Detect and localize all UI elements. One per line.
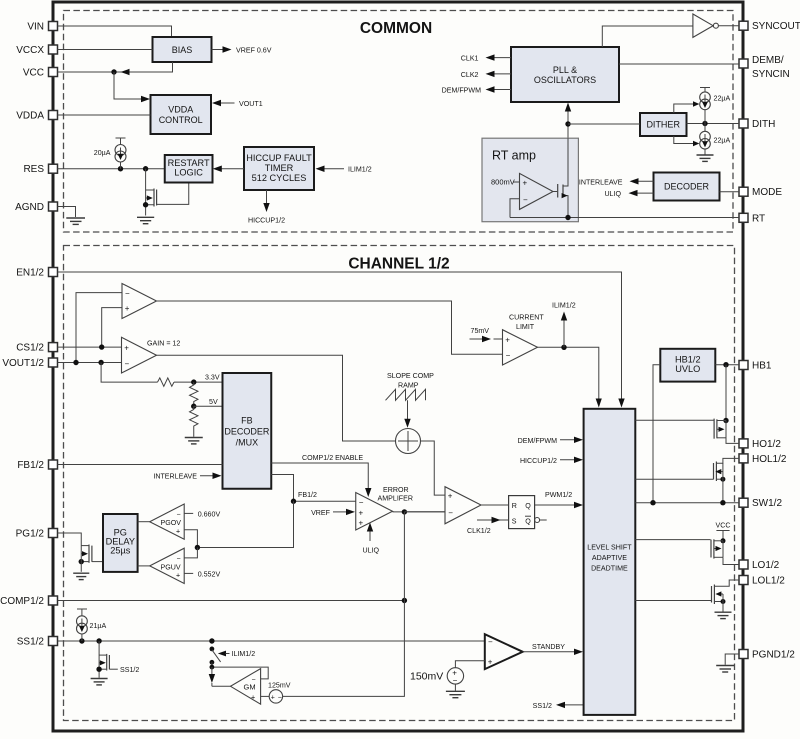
- svg-text:ILIM1/2: ILIM1/2: [232, 650, 256, 658]
- svg-text:Q: Q: [525, 502, 531, 510]
- svg-text:LEVEL SHIFT: LEVEL SHIFT: [587, 544, 632, 552]
- svg-text:ILIM1/2: ILIM1/2: [348, 166, 372, 174]
- svg-text:EN1/2: EN1/2: [16, 268, 44, 279]
- svg-text:CLK1/2: CLK1/2: [467, 527, 491, 535]
- svg-text:+: +: [448, 492, 453, 501]
- svg-text:COMMON: COMMON: [360, 20, 432, 37]
- svg-text:FB1/2: FB1/2: [17, 460, 44, 471]
- svg-text:VDDA: VDDA: [168, 105, 193, 115]
- svg-text:INTERLEAVE: INTERLEAVE: [579, 178, 623, 186]
- svg-text:−: −: [448, 508, 453, 517]
- svg-text:PWM1/2: PWM1/2: [545, 491, 572, 499]
- svg-text:RES: RES: [23, 164, 44, 175]
- svg-text:PLL &: PLL &: [553, 65, 577, 75]
- svg-text:−: −: [506, 351, 511, 360]
- svg-text:UVLO: UVLO: [675, 364, 700, 374]
- svg-text:CLK2: CLK2: [461, 71, 479, 79]
- svg-text:SYNCOUT: SYNCOUT: [752, 21, 800, 32]
- svg-text:VDDA: VDDA: [16, 111, 44, 122]
- svg-text:DEM/FPWM: DEM/FPWM: [442, 87, 481, 95]
- svg-text:VOUT1/2: VOUT1/2: [2, 358, 44, 369]
- svg-text:SYNCIN: SYNCIN: [752, 69, 790, 80]
- svg-text:SS1/2: SS1/2: [533, 702, 552, 710]
- svg-text:LIMIT: LIMIT: [516, 323, 535, 331]
- svg-text:22µA: 22µA: [714, 95, 731, 103]
- svg-text:CS1/2: CS1/2: [16, 343, 44, 354]
- svg-text:PGUV: PGUV: [161, 563, 181, 571]
- svg-text:SW1/2: SW1/2: [752, 498, 782, 509]
- svg-text:CHANNEL 1/2: CHANNEL 1/2: [348, 256, 449, 273]
- svg-text:800mV: 800mV: [491, 178, 515, 187]
- svg-text:−: −: [125, 359, 130, 368]
- svg-text:ADAPTIVE: ADAPTIVE: [592, 554, 627, 562]
- svg-text:PGND1/2: PGND1/2: [752, 650, 795, 661]
- svg-text:MODE: MODE: [752, 187, 782, 198]
- svg-text:20µA: 20µA: [94, 149, 111, 157]
- svg-text:25µs: 25µs: [110, 546, 131, 556]
- svg-text:TIMER: TIMER: [265, 163, 294, 173]
- svg-text:INTERLEAVE: INTERLEAVE: [153, 473, 197, 481]
- svg-text:RT: RT: [752, 213, 765, 224]
- svg-text:STANDBY: STANDBY: [532, 643, 565, 651]
- svg-text:FB: FB: [241, 416, 253, 426]
- svg-text:DITH: DITH: [752, 119, 775, 130]
- svg-text:+: +: [359, 509, 364, 518]
- svg-text:+: +: [523, 179, 528, 188]
- svg-text:COMP1/2 ENABLE: COMP1/2 ENABLE: [302, 454, 363, 462]
- svg-text:LOGIC: LOGIC: [174, 168, 203, 178]
- svg-text:SS1/2: SS1/2: [17, 637, 45, 648]
- svg-text:FB1/2: FB1/2: [298, 491, 317, 499]
- svg-text:PG1/2: PG1/2: [16, 529, 45, 540]
- svg-text:+: +: [271, 694, 275, 701]
- svg-text:21µA: 21µA: [90, 622, 107, 630]
- svg-text:22µA: 22µA: [714, 137, 731, 145]
- svg-text:DECODER: DECODER: [664, 182, 710, 192]
- svg-text:−: −: [523, 196, 528, 205]
- svg-text:SLOPE COMP: SLOPE COMP: [387, 372, 434, 380]
- svg-text:HO1/2: HO1/2: [752, 439, 781, 450]
- svg-text:RAMP: RAMP: [398, 382, 419, 390]
- svg-text:−: −: [278, 694, 282, 701]
- svg-text:HICCUP FAULT: HICCUP FAULT: [246, 153, 312, 163]
- svg-text:ERROR: ERROR: [383, 486, 409, 494]
- svg-text:HB1: HB1: [752, 361, 772, 372]
- svg-text:DEM/FPWM: DEM/FPWM: [518, 437, 557, 445]
- svg-text:AMPLIFER: AMPLIFER: [378, 495, 413, 503]
- svg-text:VCC: VCC: [716, 522, 731, 530]
- svg-text:Q: Q: [525, 517, 531, 525]
- svg-text:SS1/2: SS1/2: [120, 666, 139, 674]
- svg-text:HOL1/2: HOL1/2: [752, 454, 787, 465]
- svg-text:VCCX: VCCX: [16, 45, 44, 56]
- svg-text:+: +: [488, 657, 493, 666]
- svg-text:VREF: VREF: [311, 509, 331, 517]
- svg-text:125mV: 125mV: [268, 681, 291, 689]
- svg-text:VREF 0.6V: VREF 0.6V: [236, 47, 272, 55]
- svg-text:+: +: [124, 344, 129, 353]
- svg-text:ULIQ: ULIQ: [604, 190, 621, 198]
- svg-text:+: +: [505, 335, 510, 344]
- svg-text:HB1/2: HB1/2: [675, 354, 701, 364]
- svg-text:DECODER: DECODER: [224, 427, 270, 437]
- svg-text:−: −: [125, 289, 130, 298]
- svg-text:−: −: [488, 637, 493, 646]
- svg-text:5V: 5V: [209, 398, 218, 406]
- svg-text:GAIN = 12: GAIN = 12: [147, 339, 180, 347]
- svg-text:−: −: [177, 555, 181, 563]
- svg-text:DEADTIME: DEADTIME: [591, 565, 628, 573]
- svg-text:3.3V: 3.3V: [205, 374, 220, 382]
- svg-text:75mV: 75mV: [471, 327, 490, 335]
- svg-text:512 CYCLES: 512 CYCLES: [252, 173, 307, 183]
- svg-text:OSCILLATORS: OSCILLATORS: [534, 75, 596, 85]
- svg-text:+: +: [176, 527, 180, 535]
- svg-text:VIN: VIN: [27, 22, 44, 33]
- svg-text:GM: GM: [244, 682, 256, 691]
- svg-text:R: R: [512, 502, 517, 510]
- svg-text:CONTROL: CONTROL: [159, 115, 203, 125]
- svg-text:LOL1/2: LOL1/2: [752, 576, 785, 587]
- svg-text:ULIQ: ULIQ: [363, 547, 380, 555]
- svg-text:CLK1: CLK1: [461, 55, 479, 63]
- svg-text:ILIM1/2: ILIM1/2: [552, 302, 576, 310]
- svg-text:DEMB/: DEMB/: [752, 55, 784, 66]
- svg-text:150mV: 150mV: [410, 671, 443, 683]
- svg-text:DITHER: DITHER: [646, 120, 680, 130]
- svg-text:PGOV: PGOV: [161, 519, 182, 527]
- svg-text:0.660V: 0.660V: [198, 510, 221, 518]
- svg-text:+: +: [251, 694, 255, 702]
- svg-text:LO1/2: LO1/2: [752, 560, 780, 571]
- svg-text:0.552V: 0.552V: [198, 570, 221, 578]
- svg-text:CURRENT: CURRENT: [509, 314, 544, 322]
- svg-text:−: −: [177, 510, 181, 518]
- svg-text:+: +: [176, 571, 180, 579]
- svg-text:VOUT1: VOUT1: [239, 100, 263, 108]
- svg-text:RT amp: RT amp: [492, 149, 536, 163]
- svg-text:AGND: AGND: [15, 202, 44, 213]
- svg-text:RESTART: RESTART: [168, 158, 210, 168]
- svg-text:COMP1/2: COMP1/2: [0, 596, 44, 607]
- svg-text:HICCUP1/2: HICCUP1/2: [248, 217, 285, 225]
- svg-text:VCC: VCC: [23, 68, 44, 79]
- svg-text:−: −: [359, 498, 364, 507]
- svg-text:+: +: [359, 518, 364, 527]
- svg-text:/MUX: /MUX: [236, 438, 259, 448]
- svg-text:HICCUP1/2: HICCUP1/2: [520, 457, 557, 465]
- svg-text:BIAS: BIAS: [172, 45, 193, 55]
- svg-text:+: +: [125, 304, 130, 313]
- svg-text:−: −: [453, 676, 458, 685]
- svg-text:S: S: [512, 517, 517, 525]
